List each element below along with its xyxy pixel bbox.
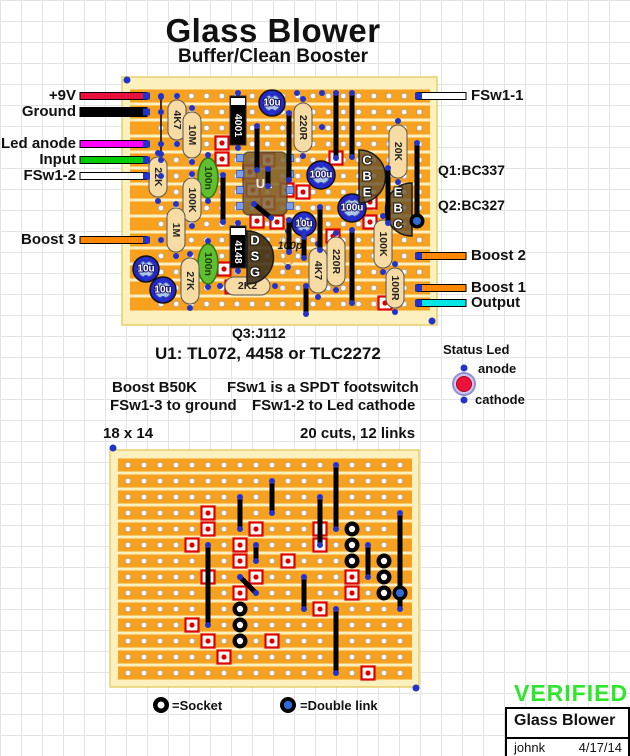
main-board-hole bbox=[371, 109, 376, 114]
wire-label-Input: Input bbox=[39, 151, 76, 168]
solder-pad bbox=[173, 253, 179, 259]
wire-link-pad bbox=[237, 494, 243, 500]
wire-link-pad bbox=[385, 165, 391, 171]
wire-link-pad bbox=[349, 227, 355, 233]
build-board-hole bbox=[205, 494, 210, 499]
build-board-hole bbox=[125, 478, 130, 483]
build-board-hole bbox=[237, 462, 242, 467]
main-board-hole bbox=[341, 285, 346, 290]
build-board-hole bbox=[253, 478, 258, 483]
solder-pad bbox=[315, 294, 321, 300]
build-board-hole bbox=[365, 510, 370, 515]
solder-pad bbox=[174, 141, 180, 147]
build-board-hole bbox=[397, 494, 402, 499]
main-board-hole bbox=[265, 221, 270, 226]
ic-pin-pad bbox=[237, 155, 244, 162]
build-board-hole bbox=[173, 494, 178, 499]
wire-link-pad bbox=[333, 155, 339, 161]
main-board-hole bbox=[371, 301, 376, 306]
build-board-hole bbox=[365, 590, 370, 595]
ic-pin-pad bbox=[287, 187, 294, 194]
main-board-hole bbox=[295, 157, 300, 162]
solder-pad bbox=[189, 171, 195, 177]
resistor-label: 4K7 bbox=[312, 261, 324, 280]
ic-pin-pad bbox=[237, 203, 244, 210]
build-board-hole bbox=[189, 478, 194, 483]
build-board-hole bbox=[221, 462, 226, 467]
build-board-hole bbox=[141, 526, 146, 531]
wire-link-pad bbox=[220, 172, 226, 178]
main-board-hole bbox=[295, 205, 300, 210]
solder-pad bbox=[349, 195, 355, 201]
solder-pad bbox=[235, 90, 241, 96]
track-cut-dot bbox=[221, 654, 226, 659]
build-board-hole bbox=[125, 654, 130, 659]
main-board-hole bbox=[341, 221, 346, 226]
wire-link-pad bbox=[349, 154, 355, 160]
legend-double-link-label: =Double link bbox=[300, 698, 378, 713]
main-board-hole bbox=[371, 269, 376, 274]
build-board-hole bbox=[269, 654, 274, 659]
build-board-hole bbox=[237, 478, 242, 483]
electrolytic-capacitor-label: 10u bbox=[154, 285, 171, 296]
main-board-hole bbox=[326, 141, 331, 146]
build-board-hole bbox=[173, 606, 178, 611]
status-led-title: Status Led bbox=[443, 342, 509, 357]
build-board-hole bbox=[221, 478, 226, 483]
main-board-hole bbox=[371, 285, 376, 290]
main-board-hole bbox=[219, 301, 224, 306]
solder-pad bbox=[235, 220, 241, 226]
solder-pad bbox=[205, 152, 211, 158]
build-board-hole bbox=[173, 542, 178, 547]
main-board-hole bbox=[174, 301, 179, 306]
build-board-hole bbox=[285, 510, 290, 515]
wire-link-pad bbox=[365, 574, 371, 580]
electrolytic-capacitor-label: 10u bbox=[137, 264, 154, 275]
wire-end-pad bbox=[143, 109, 150, 116]
build-board-hole bbox=[349, 622, 354, 627]
wire-link-pad bbox=[237, 526, 243, 532]
main-board-hole bbox=[250, 301, 255, 306]
solder-pad bbox=[160, 278, 166, 284]
offboard-wire-Boost 1 bbox=[417, 285, 466, 292]
main-board-hole bbox=[250, 109, 255, 114]
build-board-hole bbox=[397, 670, 402, 675]
build-board-hole bbox=[221, 622, 226, 627]
build-board-hole bbox=[189, 638, 194, 643]
wire-link-pad bbox=[333, 462, 339, 468]
wire-link-pad bbox=[286, 177, 292, 183]
solder-pad bbox=[269, 91, 275, 97]
main-board-hole bbox=[371, 125, 376, 130]
build-board-hole bbox=[285, 622, 290, 627]
build-board-hole bbox=[269, 606, 274, 611]
build-board-hole bbox=[269, 670, 274, 675]
build-board-hole bbox=[205, 462, 210, 467]
solder-pad bbox=[235, 268, 241, 274]
diagonal-wire-link-pad bbox=[253, 590, 259, 596]
wire-label-Boost 3: Boost 3 bbox=[21, 231, 76, 248]
build-board-hole bbox=[173, 670, 178, 675]
main-board-hole bbox=[356, 93, 361, 98]
wire-link-pad bbox=[414, 140, 420, 146]
page-title: Glass Blower bbox=[0, 12, 546, 50]
build-board-hole bbox=[365, 638, 370, 643]
track-cut-dot bbox=[189, 542, 194, 547]
solder-pad bbox=[158, 157, 164, 163]
build-board-hole bbox=[301, 542, 306, 547]
build-board-hole bbox=[397, 462, 402, 467]
wire-link-pad bbox=[286, 217, 292, 223]
socket-marker-dot bbox=[219, 156, 224, 161]
build-board-hole bbox=[285, 606, 290, 611]
build-board-hole bbox=[205, 654, 210, 659]
transistor-pin-letter: C bbox=[362, 153, 372, 168]
build-board-hole bbox=[221, 510, 226, 515]
socket-marker-center bbox=[381, 590, 387, 596]
build-board-hole bbox=[157, 478, 162, 483]
build-board-hole bbox=[141, 462, 146, 467]
solder-pad bbox=[158, 237, 164, 243]
socket-marker-center bbox=[349, 542, 355, 548]
transistor-pin-letter: E bbox=[394, 185, 403, 200]
build-board-hole bbox=[301, 638, 306, 643]
resistor-label: 100R bbox=[389, 275, 401, 301]
resistor-label: 1M bbox=[170, 223, 182, 238]
socket-marker-center bbox=[237, 606, 243, 612]
offboard-wire-FSw1-2 bbox=[80, 173, 147, 180]
diode-label: 4148 bbox=[232, 240, 244, 264]
main-board-hole bbox=[402, 93, 407, 98]
build-board-hole bbox=[141, 494, 146, 499]
stripboard-layout-page: 100n100n100p4K710M22K100K1M27K220R20K4K7… bbox=[0, 0, 630, 756]
track-cut-dot bbox=[253, 574, 258, 579]
title-block-divider bbox=[507, 737, 628, 739]
build-board-hole bbox=[221, 638, 226, 643]
wire-link-pad bbox=[253, 542, 259, 548]
build-board-hole bbox=[205, 670, 210, 675]
solder-pad bbox=[235, 145, 241, 151]
solder-pad bbox=[349, 215, 355, 221]
wire-link-pad bbox=[254, 167, 260, 173]
solder-pad bbox=[189, 223, 195, 229]
build-board-hole bbox=[301, 510, 306, 515]
main-board-hole bbox=[341, 125, 346, 130]
transistor-pin-letter: D bbox=[250, 233, 259, 248]
main-board-hole bbox=[204, 221, 209, 226]
offboard-wire-Output bbox=[417, 300, 466, 307]
main-board-hole bbox=[356, 141, 361, 146]
offboard-wire-Boost 3 bbox=[80, 237, 147, 244]
build-board-hole bbox=[317, 622, 322, 627]
build-board-hole bbox=[173, 462, 178, 467]
diode-cathode-band bbox=[231, 98, 245, 105]
main-board-hole bbox=[158, 253, 163, 258]
main-board-hole bbox=[417, 269, 422, 274]
solder-pad bbox=[318, 162, 324, 168]
main-board-hole bbox=[341, 93, 346, 98]
build-board-hole bbox=[221, 670, 226, 675]
main-board-hole bbox=[371, 93, 376, 98]
transistor-pin-letter: B bbox=[362, 169, 371, 184]
solder-pad bbox=[301, 213, 307, 219]
solder-pad bbox=[318, 182, 324, 188]
build-board-hole bbox=[221, 558, 226, 563]
wire-end-pad bbox=[415, 300, 422, 307]
main-board-hole bbox=[356, 109, 361, 114]
build-board-hole bbox=[397, 622, 402, 627]
track-cut-dot bbox=[205, 510, 210, 515]
build-board-hole bbox=[381, 526, 386, 531]
main-board-hole bbox=[174, 189, 179, 194]
build-board-hole bbox=[285, 462, 290, 467]
build-board-hole bbox=[125, 574, 130, 579]
build-board-corner-dot bbox=[110, 445, 117, 452]
main-board-hole bbox=[280, 269, 285, 274]
build-board-hole bbox=[253, 638, 258, 643]
build-board-hole bbox=[141, 654, 146, 659]
main-board-hole bbox=[219, 109, 224, 114]
solder-pad bbox=[217, 283, 223, 289]
main-board-hole bbox=[219, 93, 224, 98]
diode-cathode-band bbox=[231, 228, 245, 235]
build-board-hole bbox=[301, 654, 306, 659]
build-board-hole bbox=[125, 622, 130, 627]
main-board-hole bbox=[280, 125, 285, 130]
wire-link-pad bbox=[333, 670, 339, 676]
build-board-hole bbox=[301, 526, 306, 531]
build-board-hole bbox=[317, 462, 322, 467]
build-board-hole bbox=[157, 462, 162, 467]
build-board-hole bbox=[349, 638, 354, 643]
wire-link-pad bbox=[317, 247, 323, 253]
wire-end-pad bbox=[415, 285, 422, 292]
note-ground: FSw1-3 to ground bbox=[110, 397, 237, 414]
main-board-hole bbox=[326, 93, 331, 98]
main-board-hole bbox=[341, 301, 346, 306]
electrolytic-capacitor-label: 100u bbox=[341, 203, 364, 214]
build-board-hole bbox=[397, 654, 402, 659]
main-board-hole bbox=[174, 173, 179, 178]
main-board-hole bbox=[326, 189, 331, 194]
build-board-hole bbox=[381, 622, 386, 627]
build-board-hole bbox=[141, 670, 146, 675]
wire-link-pad bbox=[301, 574, 307, 580]
diagonal-wire-link-pad bbox=[237, 574, 243, 580]
main-board-hole bbox=[310, 189, 315, 194]
build-board-hole bbox=[285, 494, 290, 499]
main-board-hole bbox=[158, 221, 163, 226]
build-board-hole bbox=[269, 526, 274, 531]
build-board-hole bbox=[365, 654, 370, 659]
led-anode-dot bbox=[461, 365, 468, 372]
build-board-hole bbox=[205, 478, 210, 483]
build-board-hole bbox=[381, 670, 386, 675]
build-board-hole bbox=[125, 590, 130, 595]
solder-pad bbox=[143, 275, 149, 281]
main-board-hole bbox=[371, 141, 376, 146]
build-board-hole bbox=[365, 622, 370, 627]
ic-pin-pad bbox=[237, 187, 244, 194]
main-board-hole bbox=[341, 141, 346, 146]
build-board-hole bbox=[285, 542, 290, 547]
build-board-hole bbox=[125, 542, 130, 547]
main-board-hole bbox=[386, 109, 391, 114]
resistor-label: 4K7 bbox=[171, 110, 183, 129]
build-board-hole bbox=[269, 542, 274, 547]
build-board-hole bbox=[301, 494, 306, 499]
build-board-hole bbox=[269, 574, 274, 579]
solder-pad bbox=[380, 269, 386, 275]
main-board-hole bbox=[402, 109, 407, 114]
build-board-hole bbox=[237, 654, 242, 659]
transistor-pin-letter: C bbox=[393, 217, 403, 232]
build-board-hole bbox=[173, 638, 178, 643]
build-board-hole bbox=[189, 574, 194, 579]
legend-socket-icon-center bbox=[158, 702, 165, 709]
u1-note: U1: TL072, 4458 or TLC2272 bbox=[155, 344, 381, 364]
build-board-hole bbox=[189, 510, 194, 515]
build-board-hole bbox=[349, 494, 354, 499]
build-board-hole bbox=[157, 494, 162, 499]
main-board-hole bbox=[326, 221, 331, 226]
build-board-hole bbox=[141, 638, 146, 643]
main-board-hole bbox=[341, 173, 346, 178]
main-board-hole bbox=[417, 109, 422, 114]
main-board-hole bbox=[219, 125, 224, 130]
build-board-hole bbox=[253, 622, 258, 627]
main-board-hole bbox=[356, 237, 361, 242]
main-board-hole bbox=[386, 93, 391, 98]
build-board-hole bbox=[221, 494, 226, 499]
solder-pad bbox=[300, 96, 306, 102]
offboard-wire-Ground bbox=[80, 108, 147, 117]
film-capacitor-label: 100n bbox=[202, 252, 214, 276]
electrolytic-capacitor-label: 100u bbox=[310, 170, 333, 181]
main-board-hole bbox=[204, 109, 209, 114]
socket-marker-center bbox=[237, 638, 243, 644]
diagonal-wire-link-pad bbox=[251, 201, 257, 207]
build-board-hole bbox=[253, 606, 258, 611]
title-block-name: Glass Blower bbox=[514, 712, 615, 730]
resistor-label: 100K bbox=[186, 187, 198, 213]
build-board-hole bbox=[141, 478, 146, 483]
solder-pad bbox=[189, 105, 195, 111]
transistor-pin-letter: S bbox=[251, 249, 260, 264]
track-cut-dot bbox=[189, 622, 194, 627]
double-link-marker-center bbox=[413, 217, 421, 225]
solder-pad bbox=[319, 90, 325, 96]
build-board-hole bbox=[125, 494, 130, 499]
note-boost: Boost B50K bbox=[112, 379, 197, 396]
build-board-hole bbox=[365, 494, 370, 499]
build-board-hole bbox=[301, 462, 306, 467]
wire-link-pad bbox=[269, 478, 275, 484]
build-board-hole bbox=[317, 654, 322, 659]
offboard-wire-Led anode bbox=[80, 141, 147, 148]
led-cathode-dot bbox=[461, 397, 468, 404]
main-board-hole bbox=[204, 205, 209, 210]
resistor-label: 10M bbox=[186, 125, 198, 146]
solder-pad bbox=[333, 230, 339, 236]
wire-link-pad bbox=[301, 234, 307, 240]
solder-pad bbox=[205, 238, 211, 244]
wire-link-pad bbox=[385, 220, 391, 226]
main-board-hole bbox=[204, 125, 209, 130]
build-board-hole bbox=[173, 590, 178, 595]
build-board-hole bbox=[381, 654, 386, 659]
track-cut-dot bbox=[349, 590, 354, 595]
main-board-hole bbox=[234, 301, 239, 306]
main-board-hole bbox=[204, 141, 209, 146]
transistor-pin-letter: G bbox=[250, 265, 260, 280]
build-board-hole bbox=[349, 606, 354, 611]
solder-pad bbox=[294, 90, 300, 96]
wire-link-pad bbox=[303, 283, 309, 289]
resistor-label: 27K bbox=[184, 271, 196, 291]
build-board-hole bbox=[397, 478, 402, 483]
build-board-hole bbox=[317, 478, 322, 483]
main-board-hole bbox=[250, 141, 255, 146]
build-board-hole bbox=[381, 510, 386, 515]
main-board-hole bbox=[295, 301, 300, 306]
track-cut-dot bbox=[205, 526, 210, 531]
main-board-hole bbox=[356, 301, 361, 306]
build-board-hole bbox=[189, 494, 194, 499]
led-anode-label: anode bbox=[478, 361, 516, 376]
solder-pad bbox=[205, 198, 211, 204]
wire-label-Output: Output bbox=[471, 294, 520, 311]
solder-pad bbox=[285, 264, 291, 270]
build-board-hole bbox=[397, 638, 402, 643]
build-board-hole bbox=[125, 526, 130, 531]
led-cathode-label: cathode bbox=[475, 392, 525, 407]
solder-pad bbox=[392, 261, 398, 267]
wire-link-pad bbox=[365, 542, 371, 548]
title-block-date: 4/17/14 bbox=[579, 740, 622, 755]
wire-link-pad bbox=[265, 166, 271, 172]
track-cut-dot bbox=[237, 542, 242, 547]
film-capacitor-label: 100n bbox=[202, 166, 214, 190]
board-size-label: 18 x 14 bbox=[103, 425, 153, 442]
build-board-hole bbox=[381, 478, 386, 483]
build-board-hole bbox=[221, 606, 226, 611]
build-board-hole bbox=[141, 590, 146, 595]
build-board-hole bbox=[285, 478, 290, 483]
wire-end-pad bbox=[143, 157, 150, 164]
build-board-hole bbox=[317, 558, 322, 563]
wire-link-pad bbox=[333, 526, 339, 532]
main-board-corner-dot bbox=[124, 77, 131, 84]
verified-stamp: VERIFIED bbox=[514, 680, 628, 707]
main-board-hole bbox=[250, 93, 255, 98]
solder-pad bbox=[143, 257, 149, 263]
diode-label: 4001 bbox=[232, 114, 244, 138]
resistor-label: 220R bbox=[297, 115, 309, 141]
build-board-hole bbox=[221, 542, 226, 547]
main-board-hole bbox=[174, 157, 179, 162]
main-board-hole bbox=[341, 109, 346, 114]
main-board-hole bbox=[402, 253, 407, 258]
wire-link-pad bbox=[349, 300, 355, 306]
socket-marker-center bbox=[349, 526, 355, 532]
main-board-hole bbox=[402, 237, 407, 242]
build-board-hole bbox=[333, 558, 338, 563]
socket-marker-dot bbox=[254, 218, 259, 223]
resistor-label: 220R bbox=[330, 249, 342, 275]
build-board-hole bbox=[221, 526, 226, 531]
